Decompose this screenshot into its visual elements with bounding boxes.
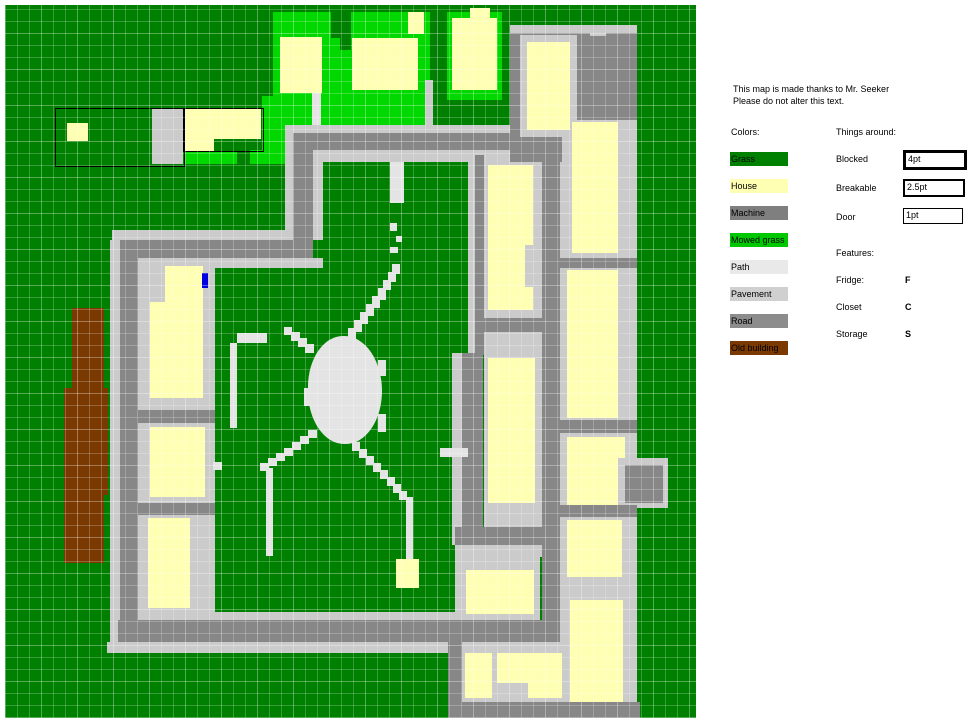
map-house-rect (165, 266, 203, 302)
swatch-label: Old building (731, 343, 779, 353)
map-pavement-rect (107, 642, 465, 653)
map-house-rect (470, 8, 490, 18)
map-house-rect (497, 653, 562, 683)
swatch-label: Pavement (731, 289, 772, 299)
map-mowed-rect (262, 96, 286, 164)
map-pavement-rect (285, 125, 293, 240)
plot-outline (183, 108, 264, 152)
map-house-rect (150, 427, 205, 497)
credit-line-1: This map is made thanks to Mr. Seeker (733, 83, 953, 95)
swatch-label: Grass (731, 154, 755, 164)
map-road-rect (448, 620, 560, 642)
colors-title: Colors: (731, 127, 760, 137)
color-swatch-machine: Machine (730, 206, 788, 220)
feature-symbol: S (905, 329, 911, 339)
map-pavement-rect (525, 245, 533, 287)
map-path-rect (237, 333, 267, 343)
map-road-rect (555, 505, 637, 517)
map-house-rect (280, 37, 322, 93)
map-pavement-rect (468, 155, 475, 353)
map-path-rect (392, 264, 400, 274)
map-path-rect (260, 463, 269, 471)
map-house-rect (396, 559, 419, 588)
swatch-label: Machine (731, 208, 765, 218)
thing-value: 1pt (906, 210, 919, 220)
map-road-rect (448, 702, 640, 718)
feature-label: Fridge: (836, 275, 864, 285)
swatch-label: House (731, 181, 757, 191)
map-road-rect (135, 410, 215, 423)
map-house-rect (465, 653, 492, 698)
color-swatch-house: House (730, 179, 788, 193)
map-road-rect (118, 620, 455, 642)
map-door-rect (202, 273, 208, 288)
map-house-rect (528, 683, 562, 698)
feature-label: Storage (836, 329, 868, 339)
map-house-rect (408, 12, 424, 34)
thing-label: Breakable (836, 183, 877, 193)
map-path-rect (399, 491, 407, 500)
map-path-rect (300, 436, 309, 444)
feature-symbol: F (905, 275, 911, 285)
color-swatch-grass: Grass (730, 152, 788, 166)
map-house-rect (452, 18, 497, 90)
map-old-rect (64, 495, 104, 563)
map-road-rect (555, 258, 637, 268)
thing-linewidth-box: 2.5pt (903, 179, 965, 197)
feature-symbol: C (905, 302, 912, 312)
feature-label: Closet (836, 302, 862, 312)
map-path-rect (291, 332, 300, 341)
things-title: Things around: (836, 127, 896, 137)
map-old-rect (72, 308, 104, 388)
thing-linewidth-box: 4pt (903, 150, 967, 170)
map-old-rect (64, 388, 108, 495)
map-canvas (0, 0, 700, 724)
map-road-rect (285, 133, 511, 150)
map-house-rect (488, 358, 535, 503)
swatch-label: Road (731, 316, 753, 326)
map-path-rect (406, 497, 413, 559)
map-pavement-rect (510, 25, 637, 33)
map-path-rect (284, 327, 292, 335)
map-path-rect (390, 223, 397, 231)
color-swatch-mowed-grass: Mowed grass (730, 233, 788, 247)
map-house-rect (567, 437, 625, 505)
swatch-label: Mowed grass (731, 235, 785, 245)
map-path-rect (390, 162, 404, 203)
map-mowed-rect (185, 151, 237, 164)
thing-value: 4pt (908, 154, 921, 164)
map-road-rect (555, 420, 637, 433)
map-path-rect (440, 448, 468, 457)
map-pavement-rect (138, 612, 455, 620)
map-house-rect (352, 38, 418, 90)
map-house-rect (488, 165, 533, 310)
map-house-rect (148, 518, 190, 608)
thing-value: 2.5pt (907, 182, 927, 192)
central-plaza-blob (308, 336, 382, 444)
map-house-rect (527, 42, 570, 130)
map-pavement-rect (110, 240, 120, 642)
map-road-rect (625, 465, 663, 503)
legend-panel: This map is made thanks to Mr. Seeker Pl… (700, 0, 968, 724)
swatch-label: Path (731, 262, 750, 272)
map-pavement-rect (138, 268, 148, 612)
map-path-rect (268, 458, 277, 466)
map-pavement-rect (313, 162, 323, 240)
thing-linewidth-box: 1pt (903, 208, 963, 224)
map-path-rect (230, 343, 237, 428)
map-road-rect (120, 258, 138, 620)
map-house-rect (570, 600, 623, 703)
map-house-rect (567, 270, 618, 418)
map-path-rect (284, 448, 293, 456)
map-path-rect (276, 453, 285, 461)
plot-outline (55, 108, 185, 167)
map-grass-rect (340, 26, 351, 50)
map-mowed-rect (250, 150, 262, 164)
thing-label: Blocked (836, 154, 868, 164)
map-road-rect (475, 318, 545, 332)
map-house-rect (150, 302, 203, 398)
screenshot-root: This map is made thanks to Mr. Seeker Pl… (0, 0, 968, 724)
map-pavement-rect (590, 25, 606, 36)
features-title: Features: (836, 248, 874, 258)
map-path-rect (308, 430, 317, 438)
thing-label: Door (836, 212, 856, 222)
map-path-rect (390, 247, 398, 253)
map-path-rect (292, 442, 301, 450)
map-house-rect (567, 520, 622, 577)
color-swatch-old-building: Old building (730, 341, 788, 355)
map-pavement-rect (112, 230, 293, 240)
map-house-rect (466, 570, 534, 614)
color-swatch-path: Path (730, 260, 788, 274)
credit-line-2: Please do not alter this text. (733, 95, 953, 107)
map-path-rect (266, 468, 273, 556)
map-road-rect (135, 503, 215, 515)
map-pavement-rect (285, 125, 511, 133)
map-path-rect (378, 414, 386, 432)
color-swatch-road: Road (730, 314, 788, 328)
map-path-rect (213, 462, 222, 470)
map-road-rect (120, 240, 313, 258)
map-path-rect (396, 236, 402, 242)
map-house-rect (572, 122, 618, 253)
color-swatch-pavement: Pavement (730, 287, 788, 301)
map-road-rect (293, 150, 313, 242)
